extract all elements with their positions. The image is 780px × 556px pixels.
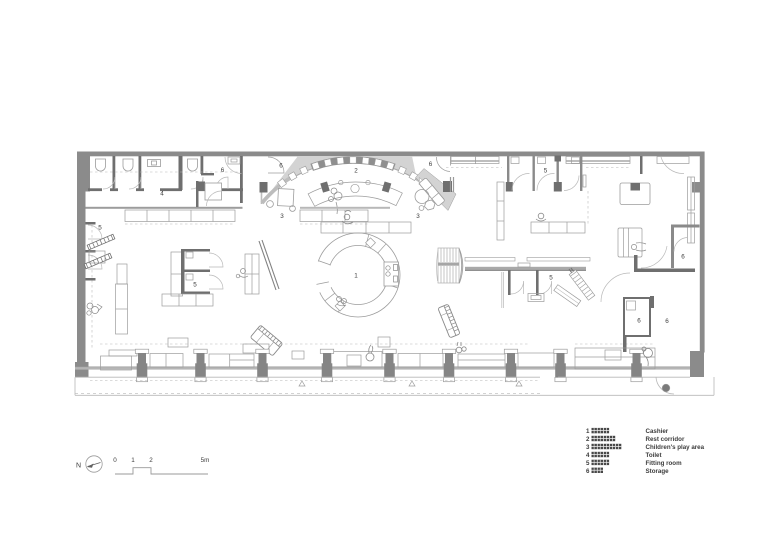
svg-text:3: 3 bbox=[586, 444, 590, 451]
svg-text:6: 6 bbox=[429, 161, 433, 168]
svg-text:1: 1 bbox=[586, 428, 590, 435]
svg-text:5: 5 bbox=[586, 460, 590, 467]
svg-text:6: 6 bbox=[665, 318, 669, 325]
svg-text:6: 6 bbox=[681, 254, 685, 261]
svg-text:Fitting room: Fitting room bbox=[646, 460, 683, 467]
svg-text:0: 0 bbox=[113, 457, 117, 464]
svg-text:5: 5 bbox=[549, 275, 553, 282]
svg-text:4: 4 bbox=[160, 191, 164, 198]
svg-text:N: N bbox=[76, 463, 81, 470]
svg-text:5: 5 bbox=[544, 168, 548, 175]
svg-text:Toilet: Toilet bbox=[646, 452, 662, 459]
svg-text:5: 5 bbox=[193, 282, 197, 289]
svg-text:4: 4 bbox=[586, 452, 590, 459]
svg-text:6: 6 bbox=[279, 163, 283, 170]
svg-text:1: 1 bbox=[354, 272, 358, 279]
svg-text:Cashier: Cashier bbox=[646, 428, 669, 435]
svg-text:6: 6 bbox=[221, 167, 225, 174]
svg-text:1: 1 bbox=[131, 457, 135, 464]
svg-text:3: 3 bbox=[280, 213, 284, 220]
svg-text:2: 2 bbox=[149, 457, 153, 464]
svg-text:5: 5 bbox=[98, 225, 102, 232]
svg-text:2: 2 bbox=[586, 436, 590, 443]
svg-text:Rest corridor: Rest corridor bbox=[646, 436, 685, 443]
svg-text:Storage: Storage bbox=[646, 468, 670, 475]
svg-text:Children's play area: Children's play area bbox=[646, 444, 705, 451]
svg-text:6: 6 bbox=[586, 468, 590, 475]
svg-text:3: 3 bbox=[416, 213, 420, 220]
svg-text:5m: 5m bbox=[201, 457, 210, 464]
svg-text:2: 2 bbox=[354, 167, 358, 174]
svg-text:6: 6 bbox=[637, 318, 641, 325]
